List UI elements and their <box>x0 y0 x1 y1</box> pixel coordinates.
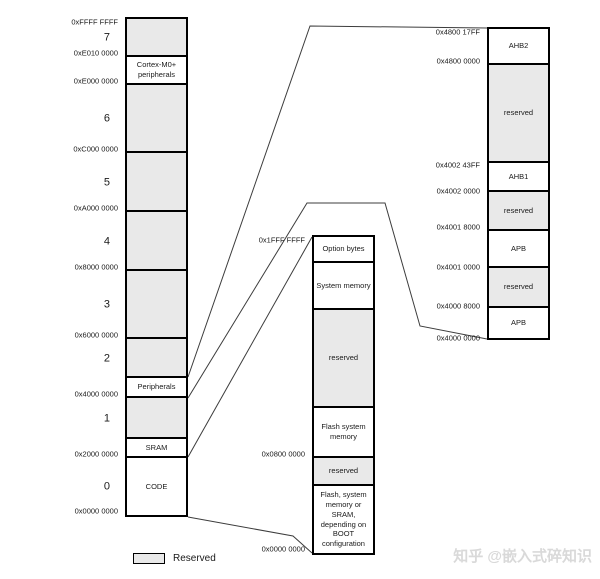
region-number: 1 <box>0 413 110 424</box>
segment-label: CODE <box>146 482 168 492</box>
segment-label: AHB1 <box>509 172 529 182</box>
memory-map-diagram: Cortex-M0+ peripheralsPeripheralsSRAMCOD… <box>0 0 600 579</box>
memory-segment: APB <box>489 308 548 338</box>
segment-label: APB <box>511 318 526 328</box>
address-label: 0xE000 0000 <box>0 77 118 86</box>
reserved-segment: reserved <box>314 310 373 408</box>
region-number: 6 <box>0 114 110 125</box>
zhihu-watermark: 知乎 @嵌入式碎知识 <box>453 545 592 566</box>
reserved-segment <box>127 19 186 57</box>
region-number: 0 <box>0 481 110 492</box>
address-label: 0x1FFF FFFF <box>185 236 305 245</box>
address-label: 0x2000 0000 <box>0 450 118 459</box>
segment-label: reserved <box>504 282 533 292</box>
region-number: 7 <box>0 33 110 44</box>
address-label: 0xFFFF FFFF <box>0 18 118 27</box>
segment-label: reserved <box>504 206 533 216</box>
segment-label: Cortex-M0+ peripherals <box>129 60 184 80</box>
memory-segment: Cortex-M0+ peripherals <box>127 57 186 85</box>
reserved-segment <box>127 212 186 271</box>
legend-reserved-label: Reserved <box>173 553 216 564</box>
address-label: 0xE010 0000 <box>0 49 118 58</box>
reserved-segment <box>127 339 186 378</box>
memory-segment: Flash, system memory or SRAM, depending … <box>314 486 373 553</box>
address-label: 0x4001 8000 <box>360 223 480 232</box>
memory-segment: SRAM <box>127 439 186 458</box>
peripheral-detail-column: AHB2reservedAHB1reservedAPBreservedAPB <box>487 27 550 340</box>
segment-label: reserved <box>329 466 358 476</box>
code-to-detail-top-line <box>188 237 312 457</box>
segment-label: Flash system memory <box>316 422 371 442</box>
reserved-segment <box>127 271 186 339</box>
address-label: 0x0000 0000 <box>0 507 118 516</box>
address-label: 0x4000 0000 <box>360 334 480 343</box>
region-number: 5 <box>0 177 110 188</box>
segment-label: AHB2 <box>509 41 529 51</box>
segment-label: System memory <box>316 281 370 291</box>
memory-segment: AHB2 <box>489 29 548 65</box>
reserved-segment: reserved <box>489 192 548 231</box>
code-detail-column: Option bytesSystem memoryreservedFlash s… <box>312 235 375 555</box>
segment-label: reserved <box>329 353 358 363</box>
memory-segment: CODE <box>127 458 186 515</box>
reserved-segment: reserved <box>489 65 548 163</box>
memory-segment: APB <box>489 231 548 268</box>
segment-label: SRAM <box>146 443 168 453</box>
segment-label: Flash, system memory or SRAM, depending … <box>316 490 371 549</box>
segment-label: Option bytes <box>322 244 364 254</box>
address-label: 0xC000 0000 <box>0 145 118 154</box>
memory-segment: Flash system memory <box>314 408 373 458</box>
address-label: 0x4002 0000 <box>360 187 480 196</box>
address-label: 0x4000 0000 <box>0 390 118 399</box>
memory-segment: Peripherals <box>127 378 186 398</box>
reserved-segment: reserved <box>314 458 373 486</box>
reserved-segment <box>127 153 186 212</box>
segment-label: reserved <box>504 108 533 118</box>
reserved-segment: reserved <box>489 268 548 308</box>
region-number: 4 <box>0 236 110 247</box>
address-label: 0x4002 43FF <box>360 161 480 170</box>
legend: Reserved <box>133 553 216 564</box>
address-label: 0x4001 0000 <box>360 263 480 272</box>
main-memory-map-column: Cortex-M0+ peripheralsPeripheralsSRAMCOD… <box>125 17 188 517</box>
address-label: 0xA000 0000 <box>0 204 118 213</box>
address-label: 0x6000 0000 <box>0 331 118 340</box>
address-label: 0x0800 0000 <box>185 450 305 459</box>
region-number: 3 <box>0 300 110 311</box>
reserved-segment <box>127 85 186 153</box>
region-number: 2 <box>0 353 110 364</box>
memory-segment: Option bytes <box>314 237 373 263</box>
memory-segment: AHB1 <box>489 163 548 192</box>
address-label: 0x4800 0000 <box>360 57 480 66</box>
legend-reserved-swatch <box>133 553 165 564</box>
address-label: 0x4800 17FF <box>360 28 480 37</box>
address-label: 0x4000 8000 <box>360 302 480 311</box>
segment-label: APB <box>511 244 526 254</box>
address-label: 0x8000 0000 <box>0 263 118 272</box>
reserved-segment <box>127 398 186 439</box>
segment-label: Peripherals <box>138 382 176 392</box>
